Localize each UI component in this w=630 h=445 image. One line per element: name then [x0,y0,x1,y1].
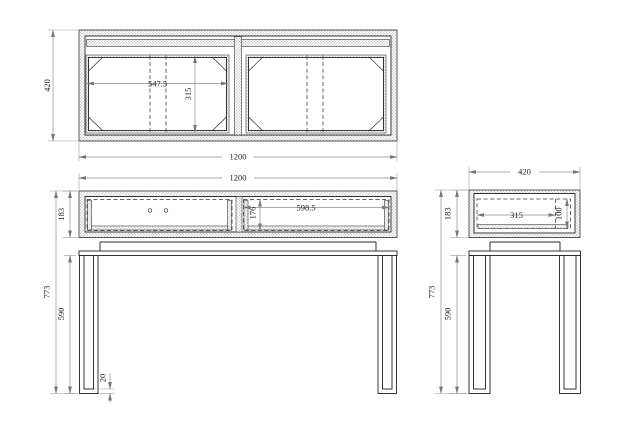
dim-top-overall-depth: 420 [42,30,78,141]
dim-label: 420 [518,167,531,177]
dim-label: 183 [443,207,453,220]
dim-label: 1200 [230,173,247,183]
dim-side-box-height: 183 [443,190,469,238]
drawing-canvas: 420 1200 547.5 315 [0,0,630,445]
front-right-leg [378,256,397,394]
top-view-right-compartment [246,55,386,133]
dim-label: 590 [443,308,453,321]
dim-front-box-height: 183 [56,191,78,238]
top-view-left-compartment [86,55,229,133]
dim-label: 773 [42,286,52,299]
top-view-center-divider [235,37,242,136]
dim-label: 20 [98,374,108,383]
side-base-frame [469,242,581,394]
dim-side-leg-height: 590 [443,256,467,394]
technical-drawing: 420 1200 547.5 315 [0,0,630,445]
side-top-rail [469,251,581,256]
dim-label: 773 [427,286,437,299]
dim-front-foot-thickness: 20 [94,373,114,403]
dim-label: 420 [42,79,52,92]
side-right-leg [560,256,581,394]
front-top-rail [79,251,397,256]
front-view: 598.5 176 [42,173,398,403]
dim-label: 598.5 [296,202,315,212]
dim-label: 176 [248,207,258,220]
front-box-divider [236,197,242,233]
dim-front-leg-height: 590 [56,256,76,394]
dim-label: 315 [183,88,193,101]
dim-side-overall-depth: 420 [469,167,580,190]
top-view: 420 1200 547.5 315 [42,30,397,162]
dim-label: 590 [56,308,66,321]
front-base-frame [79,242,397,394]
side-left-leg [469,256,490,394]
dim-label: 547.5 [148,79,167,89]
dim-label: 183 [56,208,66,221]
side-view: 315 100 420 [427,167,581,394]
dim-label: 100 [554,207,564,220]
dim-label: 315 [510,210,523,220]
dim-front-overall-width: 1200 [79,173,397,191]
dim-label: 1200 [230,152,247,162]
dim-top-overall-width: 1200 [79,142,397,162]
front-left-leg [80,256,99,394]
